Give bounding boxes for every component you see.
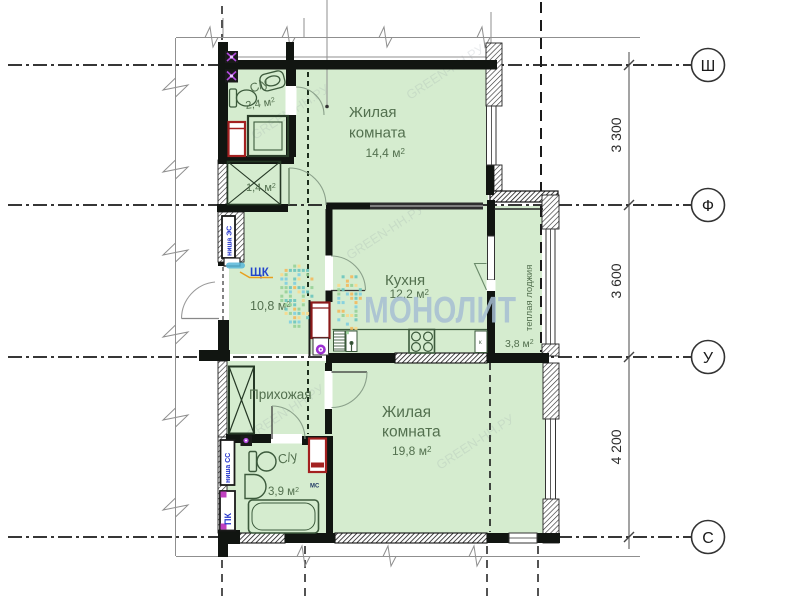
svg-text:3,9 м2: 3,9 м2 xyxy=(268,486,299,498)
svg-text:теплая лоджия: теплая лоджия xyxy=(524,265,535,331)
svg-text:3 300: 3 300 xyxy=(608,117,624,152)
svg-text:комната: комната xyxy=(349,125,406,142)
svg-text:14,4 м2: 14,4 м2 xyxy=(366,146,406,160)
svg-text:Ш: Ш xyxy=(701,58,716,75)
svg-text:Ф: Ф xyxy=(702,198,714,215)
svg-text:1,4 м2: 1,4 м2 xyxy=(246,182,276,194)
svg-text:ниша СС: ниша СС xyxy=(225,453,232,483)
svg-text:МС: МС xyxy=(310,484,320,490)
svg-text:ПК: ПК xyxy=(223,513,233,525)
svg-text:19,8 м2: 19,8 м2 xyxy=(392,444,432,458)
svg-text:комната: комната xyxy=(382,424,441,441)
svg-text:Прихожая: Прихожая xyxy=(249,387,312,402)
svg-text:4 200: 4 200 xyxy=(608,429,624,464)
svg-text:ниша ЭС: ниша ЭС xyxy=(227,226,234,256)
svg-text:С: С xyxy=(702,530,714,547)
svg-text:Жилая: Жилая xyxy=(349,104,396,121)
svg-text:3,8 м2: 3,8 м2 xyxy=(505,338,534,350)
svg-text:МОНОЛИТ: МОНОЛИТ xyxy=(364,289,516,331)
svg-text:У: У xyxy=(703,350,714,367)
svg-text:Жилая: Жилая xyxy=(382,404,431,421)
svg-text:3 600: 3 600 xyxy=(608,263,624,298)
svg-text:к: к xyxy=(479,340,482,346)
